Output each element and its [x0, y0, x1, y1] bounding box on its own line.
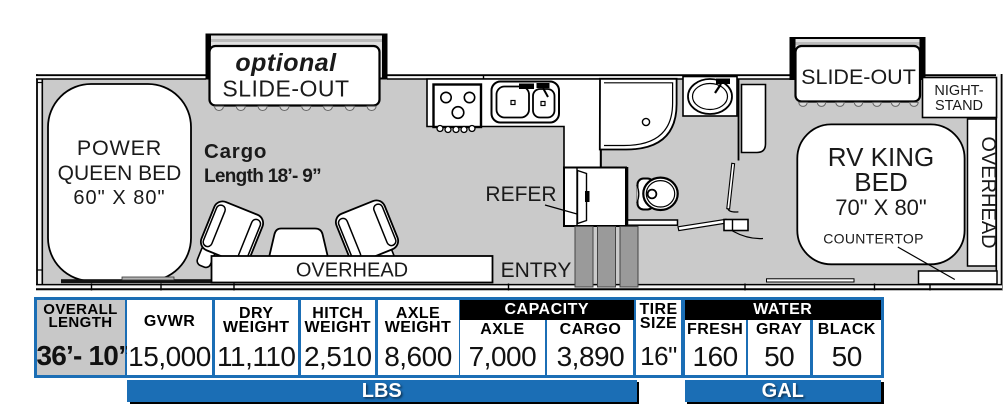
svg-text:SLIDE-OUT: SLIDE-OUT — [801, 65, 916, 89]
svg-text:70" X 80": 70" X 80" — [835, 195, 926, 220]
svg-text:Cargo: Cargo — [204, 140, 267, 163]
svg-text:COUNTERTOP: COUNTERTOP — [823, 231, 924, 247]
svg-text:NIGHT-: NIGHT- — [934, 83, 983, 99]
svg-text:OVERHEAD: OVERHEAD — [296, 260, 408, 282]
svg-text:ENTRY: ENTRY — [501, 259, 572, 282]
svg-text:Length 18’- 9”: Length 18’- 9” — [204, 166, 321, 187]
svg-text:STAND: STAND — [935, 98, 983, 114]
svg-text:60" X 80": 60" X 80" — [73, 187, 165, 209]
svg-text:optional: optional — [235, 49, 337, 77]
svg-text:POWER: POWER — [77, 136, 162, 160]
svg-text:OVERHEAD: OVERHEAD — [977, 136, 999, 248]
svg-text:REFER: REFER — [485, 183, 556, 206]
svg-text:QUEEN BED: QUEEN BED — [58, 162, 182, 185]
svg-text:BED: BED — [854, 167, 907, 197]
svg-text:SLIDE-OUT: SLIDE-OUT — [222, 76, 349, 102]
